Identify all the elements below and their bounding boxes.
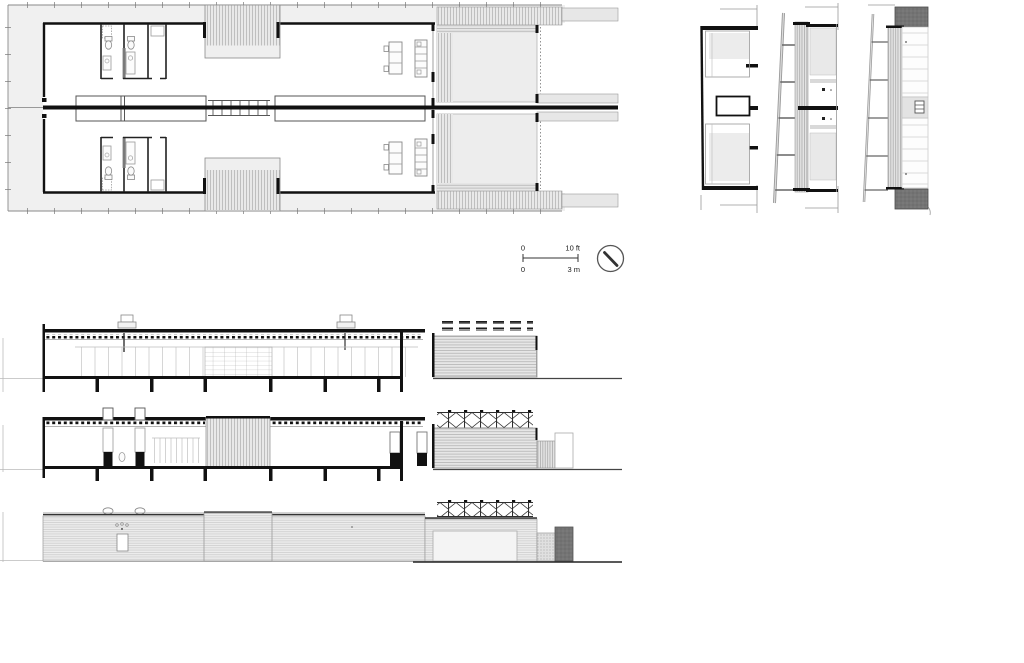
scale-metric-max: 3 m xyxy=(567,265,580,274)
spine-party-wall xyxy=(43,106,618,110)
door-element-1 xyxy=(390,432,400,466)
trellis-band-north xyxy=(437,7,562,25)
extension-lines xyxy=(0,512,43,562)
courtyard-deck-lower xyxy=(437,114,453,191)
window-grid xyxy=(205,347,272,377)
roof-vent-1 xyxy=(103,508,113,514)
bath-shaft-2 xyxy=(135,408,145,466)
white-box xyxy=(555,433,573,468)
roof-vent-2 xyxy=(135,508,145,514)
deck-north xyxy=(203,5,280,58)
dark-block-bottom xyxy=(895,189,928,209)
extension-lines xyxy=(0,425,43,472)
site-band-west xyxy=(8,5,43,211)
left-wall xyxy=(43,329,46,392)
scale-imperial-max: 10 ft xyxy=(565,244,581,253)
long-section-upper xyxy=(0,315,622,392)
dark-block-top xyxy=(895,7,928,27)
louvered-closet xyxy=(152,438,200,463)
floor-plan xyxy=(5,2,618,214)
scale-bar: 0 10 ft 0 3 m xyxy=(521,244,581,275)
scale-metric-zero: 0 xyxy=(521,265,525,274)
long-section-lower xyxy=(0,408,622,481)
toilet-fixture xyxy=(119,453,125,462)
garage-door xyxy=(433,531,517,561)
trellis-block xyxy=(432,410,538,468)
roof-slab-east xyxy=(270,417,425,421)
end-wall xyxy=(702,26,704,190)
grid-ticks-left xyxy=(5,5,11,211)
center-bay xyxy=(204,513,272,561)
courtyard-deck-upper xyxy=(437,25,453,102)
cross-section-a xyxy=(701,5,758,213)
extension-lines xyxy=(0,338,43,392)
cross-section-b xyxy=(775,3,839,213)
floor-slab xyxy=(43,466,403,469)
louver-stack xyxy=(537,441,555,468)
side-elevation xyxy=(0,500,622,562)
scale-imperial-zero: 0 xyxy=(521,244,525,253)
dark-block xyxy=(555,527,573,561)
door xyxy=(117,534,128,551)
trellis-band-south xyxy=(437,191,562,209)
spine-cabinet-section xyxy=(717,97,750,116)
screened-block xyxy=(432,321,538,377)
bath-shaft-1 xyxy=(103,408,113,466)
vent-stack xyxy=(537,533,555,561)
roof-joists xyxy=(45,334,423,339)
deck-south xyxy=(203,158,280,211)
architectural-drawing: 0 10 ft 0 3 m xyxy=(0,0,1024,663)
floor-slab xyxy=(43,376,403,379)
trellis-block xyxy=(437,500,533,517)
north-arrow-icon xyxy=(598,246,624,272)
roof-slab-west xyxy=(43,417,206,421)
ladder-detail xyxy=(915,101,924,113)
roof-vent-1 xyxy=(118,315,136,352)
courtyard-louver-upper xyxy=(437,25,537,33)
drawing-sheet: 0 10 ft 0 3 m xyxy=(0,0,1024,663)
scale-bar-line xyxy=(523,254,578,262)
end-wall-siding xyxy=(888,27,902,189)
door-element-2 xyxy=(417,432,427,466)
central-screen-block xyxy=(206,416,270,468)
courtyard-louver-lower xyxy=(437,183,537,191)
cross-section-c xyxy=(864,5,930,215)
roof-slab xyxy=(43,329,425,333)
